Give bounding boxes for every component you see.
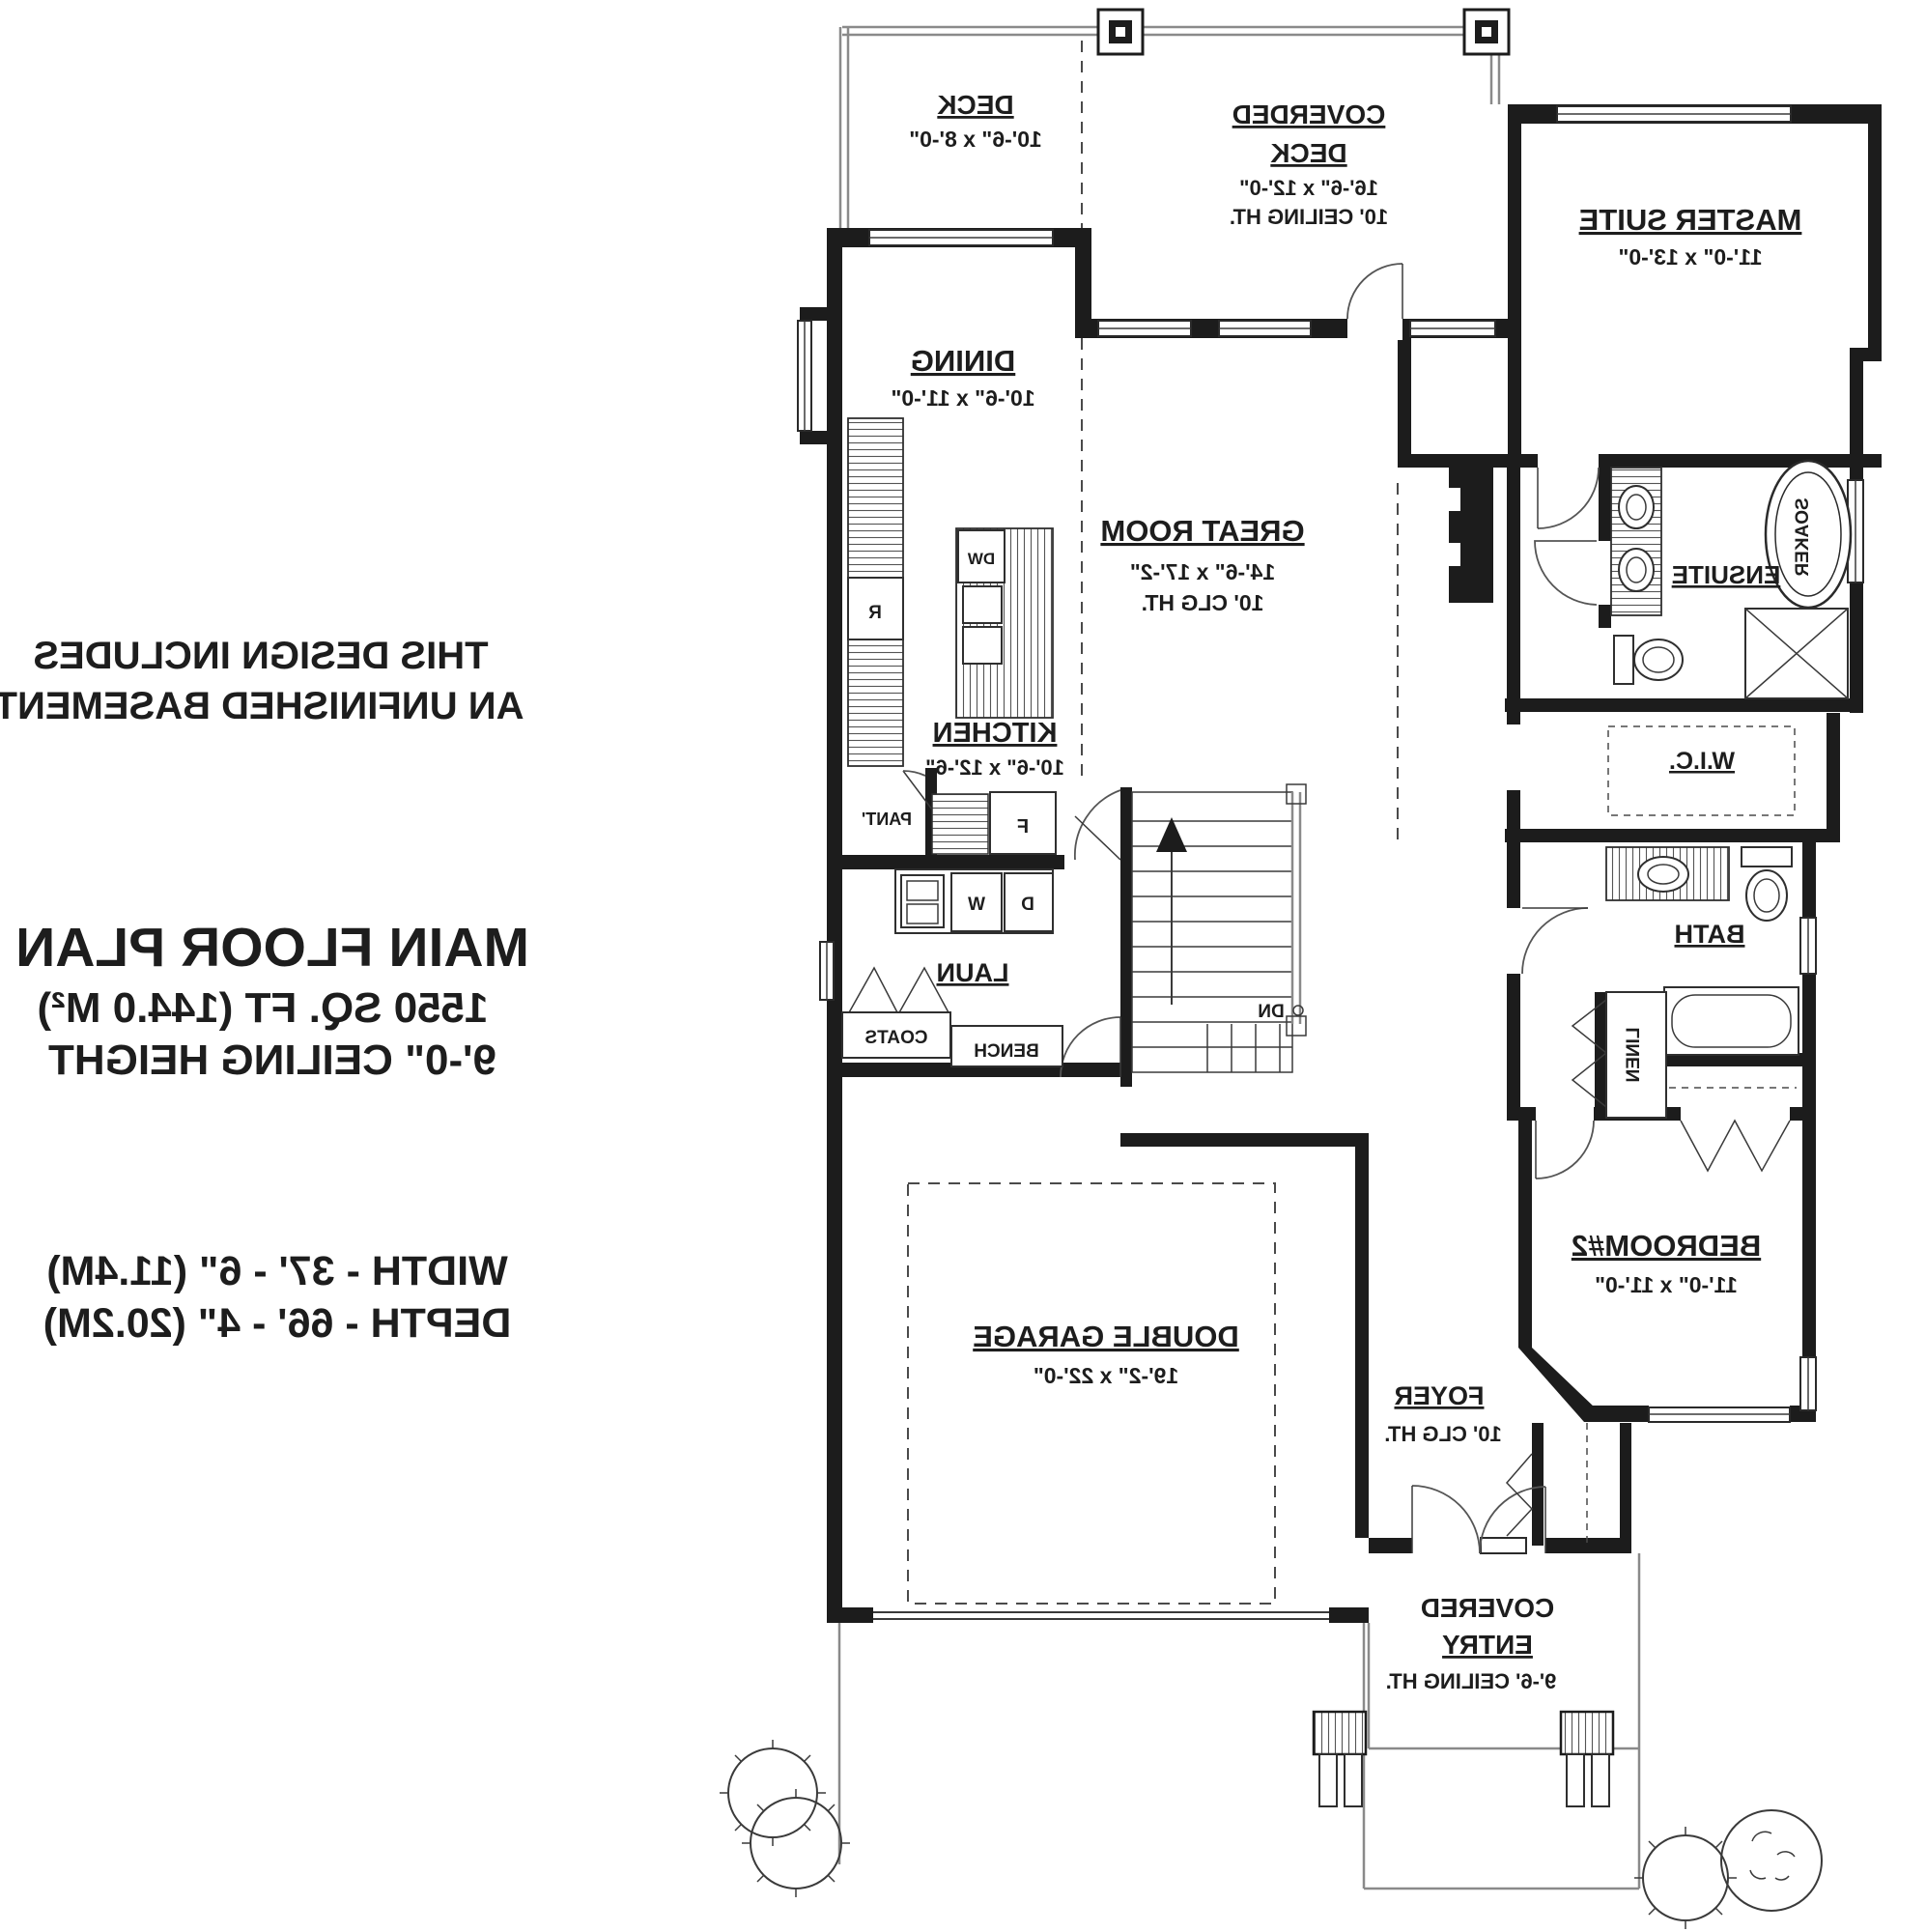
window-icon — [798, 307, 829, 444]
closet-double-door-icon — [848, 968, 949, 1014]
window-icon — [820, 942, 834, 1000]
room-label-master-suite: MASTER SUITE — [1579, 203, 1802, 237]
room-label-laundry: LAUN — [937, 958, 1009, 987]
toilet-icon — [1614, 636, 1683, 684]
door-arc-icon — [1075, 790, 1120, 860]
label-coats: COATS — [864, 1028, 927, 1048]
room-dims-great-room: 14'-6" x 17'-2" — [1130, 559, 1275, 584]
label-pantry: PANT' — [862, 810, 912, 829]
porch-column-icon — [1314, 1712, 1366, 1806]
door-arc-icon — [1347, 264, 1402, 319]
room-dims-dining: 10'-6" x 11'-0" — [891, 385, 1034, 411]
room-dims-covered-deck: 16'-6" x 12'-0" — [1239, 176, 1378, 200]
bathtub-icon — [1664, 987, 1799, 1055]
kitchen-fixtures — [848, 418, 1056, 854]
sink-icon — [1619, 486, 1654, 528]
door-arc-icon — [1536, 1121, 1594, 1179]
window-icon — [1800, 918, 1816, 974]
room-dims-master-suite: 11'-0" x 13'-0" — [1618, 244, 1762, 270]
shower-icon — [1745, 609, 1848, 698]
window-icon — [1219, 321, 1311, 336]
fireplace-icon — [1449, 468, 1493, 603]
room-label-covered-deck-2: DECK — [1270, 138, 1346, 168]
room-label-wic: W.I.C. — [1669, 748, 1735, 775]
label-dryer: D — [1021, 895, 1034, 915]
plan-depth: DEPTH - 66' - 4" (20.2M) — [43, 1300, 512, 1347]
freezer-steps — [932, 794, 988, 854]
deck-post-icon — [1464, 10, 1509, 54]
plan-area: 1550 SQ. FT (144.0 M²) — [37, 984, 488, 1032]
window-icon — [1557, 106, 1791, 122]
plan-title: MAIN FLOOR PLAN — [15, 917, 529, 979]
room-label-covered-entry-1: COVERED — [1421, 1593, 1554, 1623]
room-label-ensuite: ENSUITE — [1672, 560, 1781, 589]
kitchen-sink — [963, 627, 1002, 664]
window-icon — [1800, 1357, 1816, 1410]
room-ceiling-covered-deck: 10' CEILING HT. — [1230, 205, 1388, 229]
room-label-foyer: FOYER — [1394, 1381, 1484, 1410]
room-label-great-room: GREAT ROOM — [1100, 514, 1304, 548]
room-dims-bedroom2: 11'-0" x 11'-0" — [1595, 1272, 1738, 1297]
label-soaker: SOAKER — [1793, 497, 1813, 577]
window-icon — [1410, 321, 1495, 336]
label-stairs-down: DN — [1258, 1002, 1284, 1022]
porch-column-icon — [1561, 1712, 1613, 1806]
room-label-garage: DOUBLE GARAGE — [973, 1320, 1239, 1353]
label-dishwasher: DW — [967, 550, 995, 568]
plan-width: WIDTH - 37' - 6" (11.4M) — [46, 1248, 507, 1294]
label-fridge: R — [868, 603, 882, 623]
bifold-door-icon — [1507, 1454, 1532, 1536]
room-ceiling-great-room: 10' CLG HT. — [1142, 590, 1264, 615]
plan-ceiling-height: 9'-0" CEILING HEIGHT — [48, 1037, 496, 1084]
room-dims-kitchen: 10'-6" x 12'-6" — [925, 755, 1064, 780]
floor-plan-page: DECK 10'-6" x 8'-0" COVERDED DECK 16'-6"… — [0, 0, 1926, 1932]
door-arc-icon — [1522, 908, 1588, 974]
sink-icon — [1638, 857, 1688, 892]
kitchen-sink — [963, 586, 1002, 623]
room-label-covered-entry-2: ENTRY — [1442, 1630, 1533, 1660]
room-label-covered-deck-1: COVERDED — [1232, 99, 1386, 129]
basement-note-line1: THIS DESIGN INCLUDES — [33, 635, 488, 677]
room-label-kitchen: KITCHEN — [933, 718, 1058, 749]
toilet-icon — [1742, 847, 1792, 921]
basement-note-line2: AN UNFINISHED BASEMENT — [0, 685, 524, 727]
room-ceiling-covered-entry: 9'-6' CEILING HT. — [1386, 1669, 1557, 1693]
bush-icon — [1721, 1810, 1822, 1911]
shrub-icon — [720, 1740, 826, 1846]
room-label-bath: BATH — [1675, 920, 1745, 949]
shrub-icon — [742, 1789, 850, 1897]
front-door-sill — [1481, 1538, 1526, 1553]
label-washer: W — [968, 895, 985, 915]
floor-plan-drawing: DECK 10'-6" x 8'-0" COVERDED DECK 16'-6"… — [0, 0, 1926, 1932]
room-ceiling-foyer: 10' CLG HT. — [1384, 1422, 1501, 1446]
staircase — [1132, 784, 1306, 1072]
door-arc-icon — [1538, 468, 1599, 528]
label-linen: LINEN — [1624, 1028, 1644, 1083]
window-icon — [1098, 321, 1191, 336]
room-label-deck: DECK — [937, 90, 1013, 120]
room-dims-garage: 19'-2" x 22'-0" — [1034, 1363, 1178, 1388]
closet-double-door-icon — [1681, 1121, 1790, 1171]
room-dims-deck: 10'-6" x 8'-0" — [909, 127, 1042, 152]
deck-post-icon — [1098, 10, 1143, 54]
side-annotations: THIS DESIGN INCLUDES AN UNFINISHED BASEM… — [0, 635, 529, 1347]
label-bench: BENCH — [974, 1041, 1039, 1062]
door-arc-icon — [1535, 541, 1597, 605]
sink-icon — [1619, 549, 1654, 591]
room-label-dining: DINING — [911, 344, 1016, 378]
shrub-icon — [1634, 1827, 1737, 1929]
stairs-up-arrow-icon — [1156, 817, 1187, 852]
window-icon — [869, 230, 1053, 245]
room-label-bedroom2: BEDROOM#2 — [1572, 1229, 1761, 1263]
label-freezer: F — [1017, 816, 1029, 838]
window-icon — [1649, 1407, 1790, 1422]
